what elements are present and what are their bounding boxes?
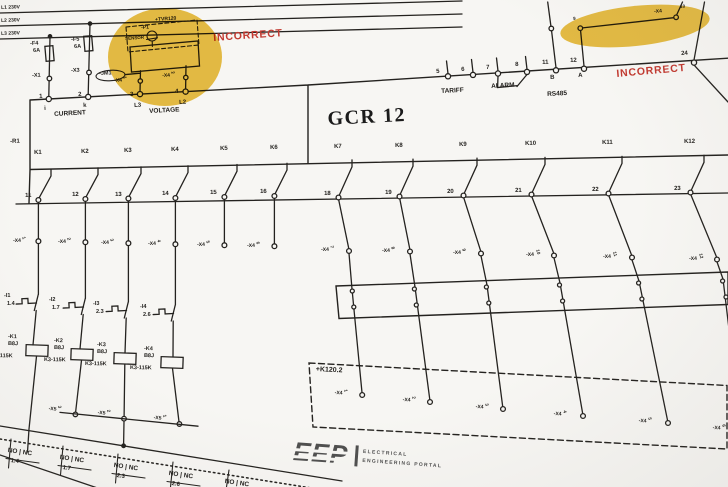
x4-text: -X4 <box>403 397 411 403</box>
x4-sup: 9 <box>461 248 466 251</box>
output-terminal-21: 21 <box>515 188 522 194</box>
bridge-right-sup: 10 <box>680 5 685 10</box>
x4-mid-label-8: -X48 <box>382 246 394 254</box>
aux-switch-i2-ref: 1.7 <box>52 306 60 312</box>
tvr-block-shapes <box>96 20 200 92</box>
x5-sup: 3 <box>57 405 62 408</box>
x4-sup: 4 <box>562 410 567 413</box>
x4-text: -X4 <box>58 239 66 245</box>
meter-box-outline <box>29 58 728 203</box>
fuse-f5-rating: 6A <box>74 45 81 51</box>
x4-text: -X4 <box>197 242 205 248</box>
supply-lines <box>0 1 462 97</box>
fuse-f4-rating: 6A <box>33 49 40 55</box>
terminal-x3-label: -X3 <box>71 69 80 75</box>
relay-k5-label: K5 <box>220 146 228 152</box>
x4-mid-label-7: -X47 <box>321 245 333 253</box>
output-terminal-14: 14 <box>162 191 169 197</box>
tvr-device-label: -P1 <box>141 25 149 31</box>
x5-text: -X5 <box>97 410 105 417</box>
meter-terminal-3: 3 <box>130 92 134 98</box>
eep-logo-acronym: EEP <box>292 440 349 467</box>
x4-sup: 2 <box>411 396 416 399</box>
x5-sup: 1 <box>162 414 167 417</box>
aux-switch-i1-ref: 1.4 <box>7 302 15 308</box>
rs485-b-label: B <box>550 75 555 81</box>
relay-contact-symbols <box>36 155 719 262</box>
x4-text: -X4 <box>453 250 461 256</box>
x5-sup: 2 <box>106 409 111 412</box>
coil-k1-code: B8J <box>8 342 18 348</box>
output-terminal-12: 12 <box>72 192 79 198</box>
meter-terminal-1-sub: i <box>44 106 46 112</box>
aux-switch-i1-label: -I1 <box>4 294 10 300</box>
meter-terminal-4-sub: L2 <box>179 100 186 106</box>
x4-mid-label-4: -X44 <box>148 239 160 247</box>
relay-k7-label: K7 <box>334 144 342 150</box>
ref-table-value-4: 2.6 <box>171 481 180 487</box>
x4-text: -X4 <box>526 252 534 258</box>
x4-text: -X4 <box>554 411 562 417</box>
output-terminal-11: 11 <box>25 193 31 199</box>
relay-k12-label: K12 <box>684 139 695 145</box>
tvr-x4-left-label: -X41 <box>114 75 126 84</box>
aux-switch-and-coil-circuits <box>16 244 198 452</box>
x5-terminal-label-2: -X52 <box>97 408 109 417</box>
x4-mid-label-5: -X45 <box>197 240 209 248</box>
x4-text: -X4 <box>476 404 484 410</box>
x4-sup: 5 <box>647 417 652 420</box>
x4-sup: 12 <box>698 253 704 259</box>
x4-text: -X4 <box>321 247 329 253</box>
x4-sup: 6 <box>255 241 260 244</box>
ref-table-value-3: 2.3 <box>116 473 125 480</box>
x4-mid-label-2: -X42 <box>58 237 70 245</box>
coil-k1-type: K3-115K <box>0 354 13 360</box>
tvr-x4-right-label: -X42 <box>162 70 174 79</box>
meter-terminal-7: 7 <box>486 65 490 71</box>
x4-sup: 2 <box>66 237 71 240</box>
x4-sup: 11 <box>612 251 617 257</box>
schematic-page: L1 230V L2 230V L3 230V -F4 6A -F5 6A -X… <box>0 0 728 487</box>
pass-through-connector <box>336 253 728 429</box>
output-terminal-19: 19 <box>385 190 392 196</box>
coil-k2-name: -K2 <box>54 339 63 345</box>
meter-terminal-5: 5 <box>436 69 440 75</box>
relay-k6-label: K6 <box>270 145 278 151</box>
relay-k1-label: K1 <box>34 150 42 156</box>
logo-divider <box>354 446 358 467</box>
meter-terminal-4: 4 <box>175 89 179 95</box>
meter-title: GCR 12 <box>327 105 406 129</box>
meter-terminal-12: 12 <box>570 58 577 64</box>
x4-text: -X4 <box>101 240 109 246</box>
aux-switch-i3-ref: 2.3 <box>96 310 104 316</box>
coil-k4-code: B8J <box>144 354 154 360</box>
field-enclosure-label: +K120.2 <box>316 366 343 374</box>
coil-k3-code: B8J <box>97 350 107 356</box>
aux-switch-i2-label: -I2 <box>49 298 55 304</box>
fuse-f4-label: -F4 <box>30 42 39 48</box>
x4-sup: 1 <box>122 76 127 80</box>
coil-k2-code: B8J <box>54 346 64 352</box>
x4-text: -X4 <box>335 390 343 396</box>
x4-mid-label-10: -X410 <box>526 250 540 258</box>
x4-text: -X4 <box>639 418 647 424</box>
coil-k3-name: -K3 <box>97 343 106 349</box>
x5-text: -X5 <box>153 415 161 422</box>
aux-switch-i4-ref: 2.6 <box>143 313 151 319</box>
x4-mid-label-6: -X46 <box>247 241 259 249</box>
terminal-x1-label: -X1 <box>32 74 41 80</box>
relay-k11-label: K11 <box>602 140 613 146</box>
aux-switch-i4-label: -I4 <box>140 305 146 311</box>
bridge-left-sup: 9 <box>573 17 576 22</box>
output-terminal-23: 23 <box>674 186 681 192</box>
x5-text: -X5 <box>48 406 56 413</box>
output-terminal-13: 13 <box>115 192 122 198</box>
relay-k10-label: K10 <box>525 141 536 147</box>
x4-sup: 1 <box>21 236 26 239</box>
x4-field-label-2: -X42 <box>403 395 415 404</box>
x5-terminal-label-3: -X51 <box>153 413 165 422</box>
rs485-section-label: RS485 <box>547 91 567 99</box>
x4-mid-label-1: -X41 <box>13 236 25 244</box>
x4-field-label-6: -X46 <box>713 423 725 432</box>
supply-line-label-2: L2 230V <box>1 18 20 24</box>
coil-k4-type: K3-115K <box>130 366 152 372</box>
meter-top-terminals <box>46 2 728 102</box>
x4-mid-label-12: -X412 <box>689 254 703 262</box>
x4-text: -X4 <box>382 248 390 254</box>
relay-k9-label: K9 <box>459 142 467 148</box>
x4-text: -X4 <box>713 425 721 431</box>
coil-k3-type: K3-115K <box>85 362 107 368</box>
x4-sup: 6 <box>721 424 726 427</box>
output-terminal-22: 22 <box>592 187 599 193</box>
meter-terminal-3-sub: L3 <box>134 103 141 109</box>
output-terminal-18: 18 <box>324 191 331 197</box>
coil-k2-type: K3-115K <box>44 358 66 364</box>
x4-sup: 4 <box>156 239 161 242</box>
meter-terminal-6: 6 <box>461 67 465 73</box>
x4-mid-label-3: -X43 <box>101 238 113 246</box>
bridge-x4-label: -X4 <box>654 9 662 15</box>
aux-switch-i3-label: -I3 <box>93 302 99 308</box>
x4-sup: 8 <box>390 246 395 249</box>
x4-mid-label-9: -X49 <box>453 248 465 256</box>
fuse-f5-label: -F5 <box>71 38 80 44</box>
coil-k1-name: -K1 <box>8 335 17 341</box>
x4-sup: 1 <box>343 389 348 392</box>
x4-text: -X4 <box>689 256 697 262</box>
ref-table-header-5: NO | NC <box>224 479 249 487</box>
meter-terminal-2: 2 <box>78 92 82 98</box>
x4-field-label-5: -X45 <box>639 416 651 425</box>
ref-table-value-1: 1.4 <box>10 458 19 465</box>
tariff-section-label: TARIFF <box>441 88 464 96</box>
meter-terminal-8: 8 <box>515 62 519 68</box>
x4-field-label-4: -X44 <box>554 409 566 418</box>
x4-text: -X4 <box>247 243 255 249</box>
output-terminal-rail <box>16 193 728 204</box>
resistor-r1-label: -R1 <box>10 139 20 145</box>
x4-sup: 5 <box>205 240 210 243</box>
x4-text: -X4 <box>13 238 21 244</box>
x4-text: -X4 <box>148 241 156 247</box>
x4-field-label-1: -X41 <box>335 388 347 397</box>
supply-line-label-3: L3 230V <box>1 31 20 37</box>
output-terminal-15: 15 <box>210 190 217 196</box>
supply-line-label-1: L1 230V <box>1 5 20 11</box>
x4-sup: 3 <box>109 238 114 241</box>
alarm-section-label: ALARM <box>491 83 515 91</box>
x4-text: -X4 <box>114 78 122 84</box>
relay-k3-label: K3 <box>124 148 132 154</box>
relay-k8-label: K8 <box>395 143 403 149</box>
meter-terminal-2-sub: k <box>83 103 87 109</box>
x4-sup: 10 <box>535 249 541 255</box>
x4-mid-label-11: -X411 <box>603 252 617 260</box>
relay-k4-label: K4 <box>171 147 179 153</box>
x4-sup: 7 <box>329 245 334 248</box>
relay-k2-label: K2 <box>81 149 89 155</box>
x4-text: -X4 <box>603 254 611 260</box>
jumper-jm1-label: -JM1 <box>99 71 112 77</box>
meter-terminal-1: 1 <box>39 94 43 100</box>
x5-terminal-label-1: -X53 <box>48 404 60 413</box>
meter-terminal-11: 11 <box>542 60 549 66</box>
coil-k4-name: -K4 <box>144 347 153 353</box>
x4-field-label-3: -X43 <box>476 402 488 411</box>
x4-sup: 2 <box>170 71 175 75</box>
meter-terminal-24: 24 <box>681 51 688 57</box>
rs485-a-label: A <box>578 73 583 79</box>
output-terminal-20: 20 <box>447 189 454 195</box>
x4-text: -X4 <box>162 73 170 79</box>
ref-table-value-2: 1.7 <box>62 465 71 472</box>
output-terminal-16: 16 <box>260 189 267 195</box>
x4-sup: 3 <box>484 403 489 406</box>
